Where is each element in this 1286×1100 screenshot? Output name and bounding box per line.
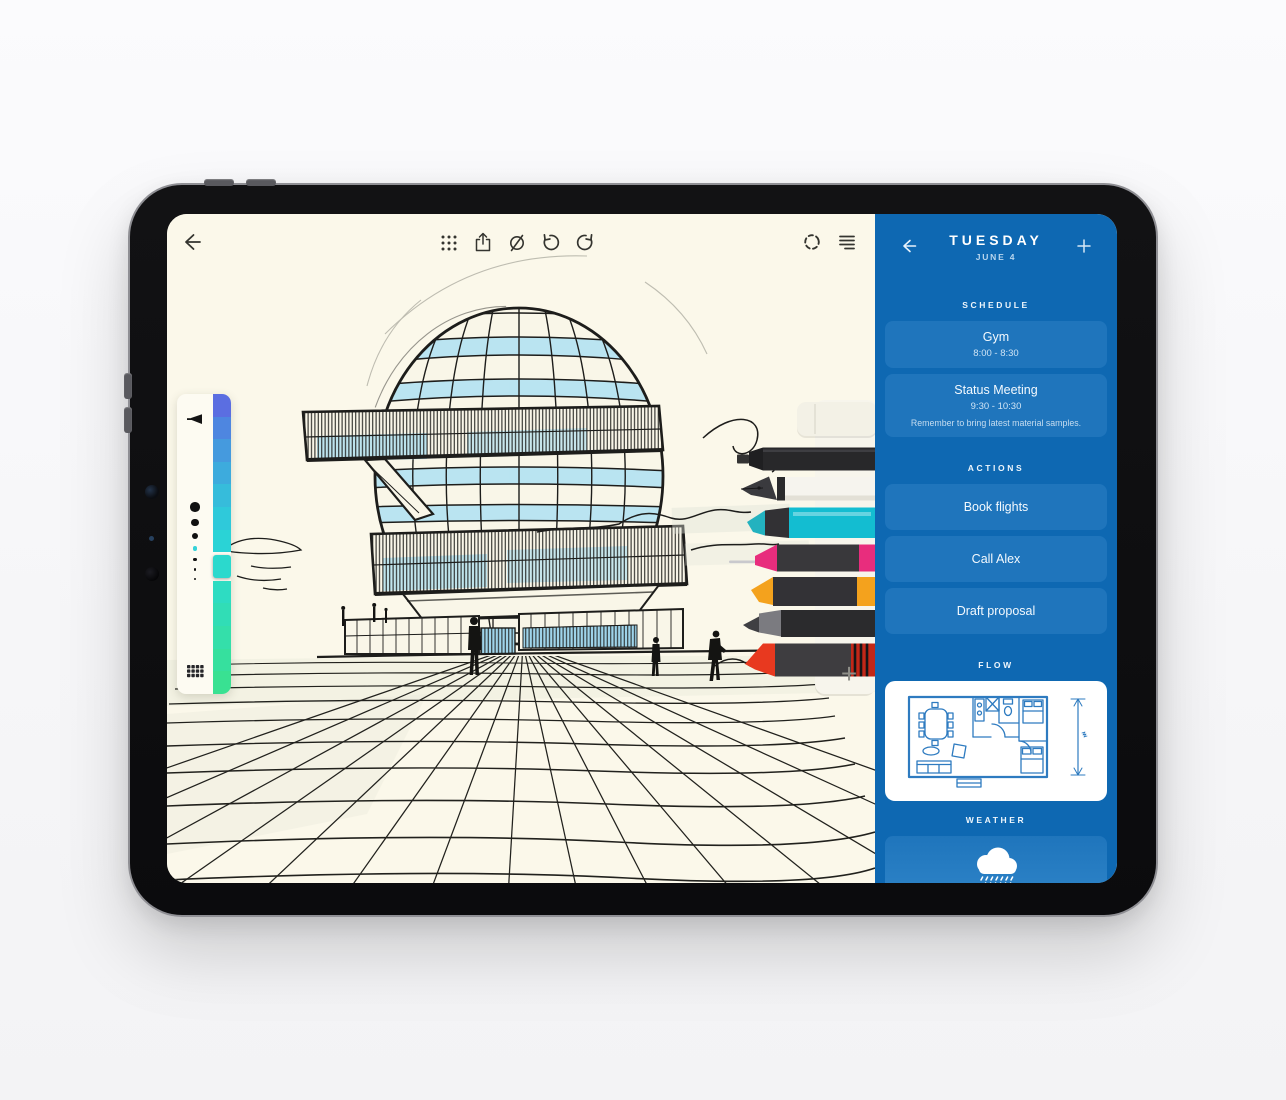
color-swatch[interactable] xyxy=(213,507,231,530)
pen-fountain[interactable] xyxy=(741,477,875,501)
share-icon[interactable] xyxy=(472,231,494,253)
event-title: Status Meeting xyxy=(895,383,1097,397)
brush-size-dot[interactable] xyxy=(193,558,197,562)
rain-cloud-icon xyxy=(964,846,1028,883)
page-background: { "canvas_app": { "toolbar": { "icons_le… xyxy=(0,0,1286,1100)
weather-section-label: WEATHER xyxy=(875,815,1117,826)
color-strip[interactable] xyxy=(213,394,231,694)
sidebar-back-icon[interactable] xyxy=(897,235,919,257)
event-time: 8:00 - 8:30 xyxy=(895,348,1097,359)
color-swatch[interactable] xyxy=(213,417,231,440)
slashed-circle-icon[interactable] xyxy=(506,231,528,253)
flow-sketch-card[interactable] xyxy=(885,681,1107,801)
schedule-event-card[interactable]: Status Meeting 9:30 - 10:30 Remember to … xyxy=(885,374,1107,437)
pen-orange-marker[interactable] xyxy=(751,577,875,606)
color-swatch[interactable] xyxy=(213,649,231,672)
sidebar-header: TUESDAY JUNE 4 xyxy=(875,214,1117,276)
tool-tip-icon[interactable] xyxy=(187,411,203,427)
align-right-lines-icon[interactable] xyxy=(835,231,857,253)
pen-gray-pencil[interactable] xyxy=(743,610,875,637)
color-swatch[interactable] xyxy=(213,603,231,626)
volume-button-down xyxy=(246,179,276,186)
front-camera xyxy=(145,485,159,499)
action-item-card[interactable]: Call Alex xyxy=(885,536,1107,582)
floor-plan-drawing xyxy=(895,689,1097,793)
drawing-app: + xyxy=(167,214,875,883)
event-title: Gym xyxy=(895,330,1097,344)
action-title: Book flights xyxy=(895,500,1097,514)
color-swatch[interactable] xyxy=(213,671,231,694)
brush-size-dot[interactable] xyxy=(193,546,198,551)
brush-size-dot[interactable] xyxy=(194,578,196,580)
sensor-dot xyxy=(149,536,154,541)
color-swatch[interactable] xyxy=(213,484,231,507)
undo-icon[interactable] xyxy=(540,231,562,253)
color-swatch[interactable] xyxy=(213,555,231,578)
selection-circle-icon[interactable] xyxy=(801,231,823,253)
action-item-card[interactable]: Draft proposal xyxy=(885,588,1107,634)
schedule-section-label: SCHEDULE xyxy=(875,300,1117,311)
redo-icon[interactable] xyxy=(574,231,596,253)
volume-button-up xyxy=(204,179,234,186)
flow-section-label: FLOW xyxy=(875,660,1117,671)
brush-size-dot[interactable] xyxy=(194,568,197,571)
pattern-grid-icon[interactable] xyxy=(186,663,204,681)
tool-palette xyxy=(177,394,231,694)
brush-size-dot[interactable] xyxy=(190,502,200,512)
ipad-device: + TUESDAY JUNE 4 SC xyxy=(128,183,1158,917)
brush-size-dot[interactable] xyxy=(192,533,198,539)
color-swatch[interactable] xyxy=(213,439,231,462)
side-button xyxy=(124,407,132,433)
sidebar-add-icon[interactable] xyxy=(1073,235,1095,257)
pen-black-fineliner[interactable] xyxy=(737,448,875,471)
camera-sensor xyxy=(145,567,159,581)
back-arrow-icon[interactable] xyxy=(180,231,202,253)
color-swatch[interactable] xyxy=(213,462,231,485)
actions-section-label: ACTIONS xyxy=(875,463,1117,474)
ipad-screen: + TUESDAY JUNE 4 SC xyxy=(167,214,1117,883)
color-swatch[interactable] xyxy=(213,530,231,553)
color-swatch[interactable] xyxy=(213,581,231,604)
grid-dots-icon[interactable] xyxy=(438,231,460,253)
pen-pink-fineliner[interactable] xyxy=(729,545,875,572)
side-button xyxy=(124,373,132,399)
event-note: Remember to bring latest material sample… xyxy=(895,418,1097,428)
planner-sidebar: TUESDAY JUNE 4 SCHEDULE Gym 8:00 - 8:30 … xyxy=(875,214,1117,883)
weather-card[interactable] xyxy=(885,836,1107,883)
eraser-tool[interactable] xyxy=(797,402,875,438)
add-tool-button[interactable]: + xyxy=(833,658,865,690)
brush-size-dots[interactable] xyxy=(177,502,213,580)
pen-teal-highlighter[interactable] xyxy=(747,508,875,539)
brush-size-dot[interactable] xyxy=(191,519,199,527)
color-swatch[interactable] xyxy=(213,394,231,417)
schedule-event-card[interactable]: Gym 8:00 - 8:30 xyxy=(885,321,1107,368)
action-item-card[interactable]: Book flights xyxy=(885,484,1107,530)
color-swatch[interactable] xyxy=(213,626,231,649)
action-title: Call Alex xyxy=(895,552,1097,566)
event-time: 9:30 - 10:30 xyxy=(895,401,1097,412)
action-title: Draft proposal xyxy=(895,604,1097,618)
